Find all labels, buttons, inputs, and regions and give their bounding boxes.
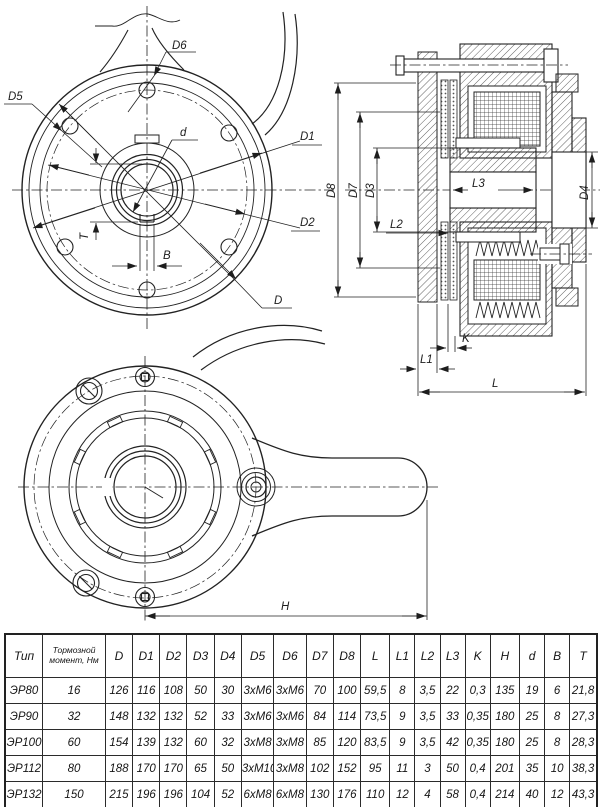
spec-cell: 33: [440, 704, 465, 730]
spec-cell: 176: [333, 782, 360, 807]
dim-label-d6: D6: [172, 40, 187, 52]
spec-cell: 3xM8: [274, 730, 306, 756]
spec-cell: 70: [306, 678, 333, 704]
coil-bottom: [474, 260, 540, 300]
spec-cell: 9: [390, 704, 415, 730]
spec-cell: 60: [187, 730, 214, 756]
spec-cell: 0,4: [465, 756, 490, 782]
spec-col-header: K: [465, 634, 490, 678]
spec-cell: 3xM10: [241, 756, 273, 782]
spec-row: ЭР903214813213252333xM63xM68411473,593,5…: [5, 704, 597, 730]
spec-cell: 150: [43, 782, 106, 807]
spec-cell: 196: [133, 782, 160, 807]
spec-cell: 52: [214, 782, 241, 807]
leader-d: [133, 140, 198, 212]
spec-cell: 83,5: [361, 730, 390, 756]
spec-cell: 59,5: [361, 678, 390, 704]
break-line: [95, 14, 180, 26]
dim-label-d5: D5: [8, 91, 23, 103]
spec-cell: 35: [519, 756, 544, 782]
dim-label-k: K: [462, 333, 471, 345]
spec-cell: 132: [160, 704, 187, 730]
spec-cell: 60: [43, 730, 106, 756]
spec-cell: 152: [333, 756, 360, 782]
spec-cell: 8: [545, 704, 570, 730]
spec-cell: 85: [306, 730, 333, 756]
dim-label-h: H: [281, 601, 290, 613]
spec-cell: 22: [440, 678, 465, 704]
spec-cell: 3,5: [415, 730, 440, 756]
spec-cell: 28,3: [570, 730, 597, 756]
rear-bore-gap: [102, 478, 112, 496]
spec-cell: 0,3: [465, 678, 490, 704]
spec-cell: 120: [333, 730, 360, 756]
spec-cell: 3: [415, 756, 440, 782]
spec-col-header: T: [570, 634, 597, 678]
spec-cell: 6: [545, 678, 570, 704]
spec-cell: 3,5: [415, 678, 440, 704]
spec-cell: 12: [390, 782, 415, 807]
spec-cell: ЭР80: [5, 678, 43, 704]
spec-cell: 201: [490, 756, 519, 782]
spec-cell: 12: [545, 782, 570, 807]
spec-cell: 3xM8: [274, 756, 306, 782]
leader-D6: [128, 52, 196, 112]
spec-cell: 3xM6: [274, 704, 306, 730]
spec-cell: 43,3: [570, 782, 597, 807]
spec-cell: 135: [490, 678, 519, 704]
spec-cell: 52: [187, 704, 214, 730]
spec-cell: 3xM8: [241, 730, 273, 756]
spec-col-header: D: [105, 634, 132, 678]
spec-col-header: D1: [133, 634, 160, 678]
section-view: D8 D7 D3 L2 L3: [326, 44, 600, 396]
front-view: B T D6 D5 d: [4, 6, 334, 332]
spec-cell: 32: [43, 704, 106, 730]
spec-col-header: D3: [187, 634, 214, 678]
spec-cell: 116: [133, 678, 160, 704]
spec-cell: 0,4: [465, 782, 490, 807]
spec-cell: 9: [390, 730, 415, 756]
spec-cell: 32: [214, 730, 241, 756]
spec-cell: 30: [214, 678, 241, 704]
spec-cell: 84: [306, 704, 333, 730]
spec-cell: 139: [133, 730, 160, 756]
spec-col-header: D8: [333, 634, 360, 678]
spec-cell: 3xM6: [241, 704, 273, 730]
spec-cell: 196: [160, 782, 187, 807]
dim-label-l: L: [492, 378, 498, 390]
spec-cell: 6xM8: [274, 782, 306, 807]
spec-row: ЭР1128018817017065503xM103xM810215295113…: [5, 756, 597, 782]
dim-label-l3: L3: [472, 178, 485, 190]
spec-cell: 11: [390, 756, 415, 782]
leader-D5: [4, 104, 102, 167]
spec-cell: 114: [333, 704, 360, 730]
spec-cell: 170: [160, 756, 187, 782]
spec-cell: 33: [214, 704, 241, 730]
leader-D2: [48, 165, 320, 231]
spec-cell: 180: [490, 730, 519, 756]
spec-row: ЭР801612611610850303xM63xM67010059,583,5…: [5, 678, 597, 704]
dim-label-d-outer: D: [274, 295, 282, 307]
spec-cell: 8: [545, 730, 570, 756]
spec-cell: 50: [214, 756, 241, 782]
spec-cell: 40: [519, 782, 544, 807]
spec-row: ЭР1006015413913260323xM83xM88512083,593,…: [5, 730, 597, 756]
spec-cell: 3xM6: [274, 678, 306, 704]
spec-cell: 108: [160, 678, 187, 704]
spec-cell: 25: [519, 730, 544, 756]
dim-label-d2: D2: [300, 217, 315, 229]
spec-col-header: D2: [160, 634, 187, 678]
spec-table: ТипТормозной момент, НмDD1D2D3D4D5D6D7D8…: [4, 633, 598, 807]
spec-header-row: ТипТормозной момент, НмDD1D2D3D4D5D6D7D8…: [5, 634, 597, 678]
spec-cell: 4: [415, 782, 440, 807]
spec-cell: 50: [187, 678, 214, 704]
spec-cell: 73,5: [361, 704, 390, 730]
spec-cell: 8: [390, 678, 415, 704]
spec-cell: 215: [105, 782, 132, 807]
spec-col-header: H: [490, 634, 519, 678]
spec-cell: 58: [440, 782, 465, 807]
spec-cell: 95: [361, 756, 390, 782]
spec-cell: 100: [333, 678, 360, 704]
spec-col-header: Тип: [5, 634, 43, 678]
spec-cell: 130: [306, 782, 333, 807]
dim-label-t: T: [79, 232, 91, 240]
spec-cell: 0,35: [465, 730, 490, 756]
spec-col-header: D7: [306, 634, 333, 678]
spec-cell: ЭР112: [5, 756, 43, 782]
dim-label-d1: D1: [300, 131, 315, 143]
spec-col-header: D5: [241, 634, 273, 678]
drawing-views: B T D6 D5 d: [0, 0, 602, 630]
dim-label-d8: D8: [326, 183, 338, 198]
dim-label-d3: D3: [365, 183, 377, 198]
spec-cell: ЭР100: [5, 730, 43, 756]
spec-cell: 38,3: [570, 756, 597, 782]
spec-cell: 148: [105, 704, 132, 730]
slotted-screw-upper: [76, 378, 102, 404]
dim-label-l2: L2: [390, 219, 403, 231]
front-top-bracket: [95, 14, 184, 72]
spec-col-header: D4: [214, 634, 241, 678]
spec-cell: 21,8: [570, 678, 597, 704]
spec-cell: ЭР132: [5, 782, 43, 807]
spec-cell: ЭР90: [5, 704, 43, 730]
rear-pointer-tick: [145, 487, 163, 498]
spec-cell: 132: [160, 730, 187, 756]
spec-body: ЭР801612611610850303xM63xM67010059,583,5…: [5, 678, 597, 807]
dim-label-b: B: [163, 250, 171, 262]
spec-cell: 180: [490, 704, 519, 730]
spec-col-header: L3: [440, 634, 465, 678]
rear-view: H: [18, 325, 438, 622]
spec-cell: 65: [187, 756, 214, 782]
spec-cell: 3xM6: [241, 678, 273, 704]
spec-cell: 214: [490, 782, 519, 807]
spec-cell: 27,3: [570, 704, 597, 730]
dim-label-d4: D4: [579, 185, 591, 200]
leader-D-outer: [59, 104, 292, 308]
dim-label-l1: L1: [420, 354, 433, 366]
spec-col-header: L1: [390, 634, 415, 678]
spec-col-header: Тормозной момент, Нм: [43, 634, 106, 678]
dim-label-d: d: [180, 127, 187, 139]
spec-col-header: L: [361, 634, 390, 678]
spec-col-header: B: [545, 634, 570, 678]
spec-cell: 10: [545, 756, 570, 782]
spec-cell: 102: [306, 756, 333, 782]
spec-row: ЭР132150215196196104526xM86xM81301761101…: [5, 782, 597, 807]
spec-cell: 19: [519, 678, 544, 704]
spec-cell: 188: [105, 756, 132, 782]
spec-cell: 50: [440, 756, 465, 782]
spec-cell: 0,35: [465, 704, 490, 730]
spec-cell: 126: [105, 678, 132, 704]
rear-cable: [193, 325, 325, 370]
spec-cell: 104: [187, 782, 214, 807]
spec-cell: 6xM8: [241, 782, 273, 807]
spec-cell: 25: [519, 704, 544, 730]
spec-cell: 42: [440, 730, 465, 756]
spec-cell: 154: [105, 730, 132, 756]
dimension-L1: [400, 304, 455, 396]
spec-cell: 16: [43, 678, 106, 704]
dim-label-d7: D7: [348, 183, 360, 198]
spec-cell: 80: [43, 756, 106, 782]
spec-cell: 132: [133, 704, 160, 730]
spec-col-header: D6: [274, 634, 306, 678]
spec-cell: 110: [361, 782, 390, 807]
spec-col-header: L2: [415, 634, 440, 678]
drawing-sheet: B T D6 D5 d: [0, 0, 602, 807]
front-cable: [252, 12, 297, 135]
spec-col-header: d: [519, 634, 544, 678]
spec-cell: 3,5: [415, 704, 440, 730]
spec-cell: 170: [133, 756, 160, 782]
armature-plate: [418, 52, 437, 302]
